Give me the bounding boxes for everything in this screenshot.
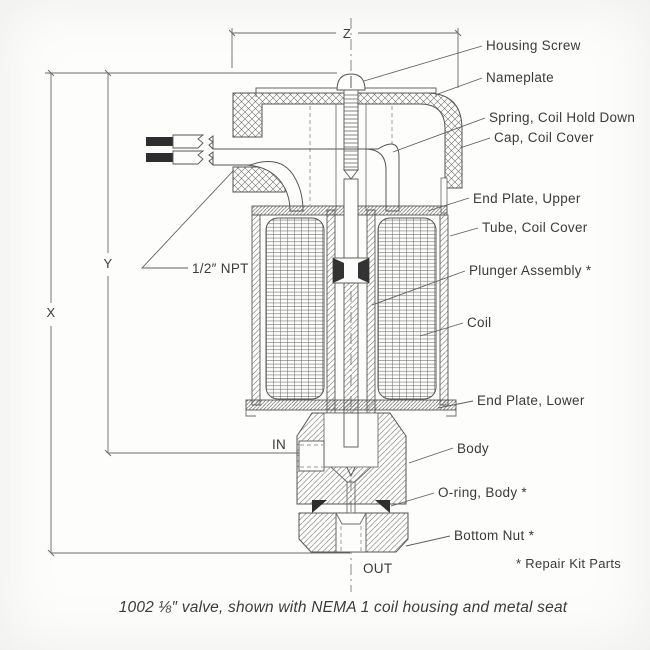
inlet-port: [299, 441, 324, 471]
tube-wall-left: [252, 215, 260, 405]
leader-end-plate-upper: [428, 198, 469, 211]
label-end-plate-upper: End Plate, Upper: [473, 191, 581, 206]
outlet-channel: [336, 513, 366, 552]
dimension-z-label: Z: [343, 26, 351, 41]
screw-tip: [344, 170, 358, 179]
leader-bottom-nut: [406, 536, 450, 546]
plunger-tube-wall-right: [367, 210, 375, 433]
leader-cap: [460, 138, 490, 148]
label-tube-coil-cover: Tube, Coil Cover: [482, 220, 588, 235]
plunger-tube-wall-left: [327, 210, 335, 433]
label-coil: Coil: [467, 315, 491, 330]
coil-left-section: [266, 218, 324, 399]
wire-insulation-lower: [173, 151, 203, 164]
body-part: [297, 413, 406, 513]
leader-tube: [450, 228, 478, 236]
scanned-figure-page: X Y Z: [0, 0, 650, 650]
plunger-upper-rod: [344, 179, 358, 258]
figure-caption: 1002 ⅛″ valve, shown with NEMA 1 coil ho…: [119, 599, 568, 616]
label-spring-coil-hold-down: Spring, Coil Hold Down: [489, 110, 635, 125]
label-o-ring-body: O-ring, Body *: [438, 485, 527, 500]
housing-screw-part: [337, 74, 365, 179]
label-end-plate-lower: End Plate, Lower: [477, 393, 585, 408]
conduit-label: 1/2″ NPT: [192, 261, 249, 276]
label-nameplate: Nameplate: [486, 70, 554, 85]
screw-shank: [344, 90, 358, 170]
lead-wires: [146, 135, 399, 211]
wire-insulation-upper: [173, 135, 203, 148]
outlet-label: OUT: [363, 561, 392, 576]
label-housing-screw: Housing Screw: [486, 38, 581, 53]
tube-wall-right: [440, 215, 448, 405]
coil-right-section: [378, 218, 436, 399]
label-cap-coil-cover: Cap, Coil Cover: [494, 130, 594, 145]
leader-spring: [393, 118, 485, 152]
conduit-leader: [142, 171, 233, 268]
leader-housing-screw: [364, 46, 482, 81]
label-bottom-nut: Bottom Nut *: [454, 528, 535, 543]
repair-kit-footnote: * Repair Kit Parts: [516, 556, 621, 571]
wire-stripped-end-lower: [146, 153, 173, 162]
label-body: Body: [457, 441, 489, 456]
dimension-x-label: X: [47, 305, 56, 320]
inlet-label: IN: [272, 437, 286, 452]
wire-stripped-end-upper: [146, 137, 173, 146]
label-plunger-assembly: Plunger Assembly *: [469, 263, 592, 278]
leader-body: [409, 448, 453, 463]
bottom-nut-part: [299, 513, 408, 552]
plunger-stem-in-body: [344, 413, 358, 447]
valve-cross-section-diagram: X Y Z: [0, 0, 650, 650]
leader-nameplate: [438, 78, 482, 94]
dimension-y-label: Y: [104, 256, 113, 271]
end-plate-lower-section: [246, 400, 456, 410]
